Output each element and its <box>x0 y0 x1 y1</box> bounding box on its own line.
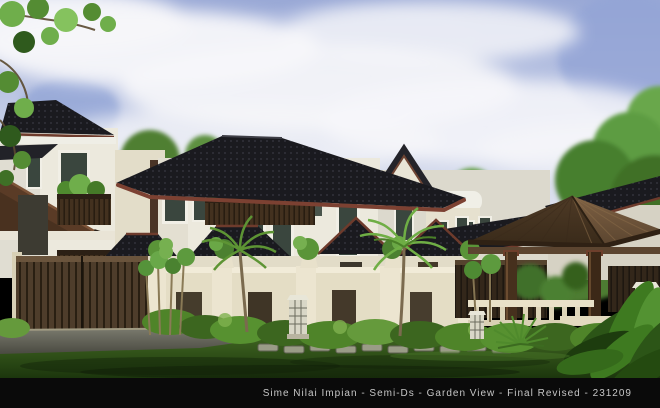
architectural-rendering <box>0 0 660 378</box>
stone-lamp <box>468 311 486 339</box>
stone-lamp <box>287 295 309 339</box>
caption-text: Sime Nilai Impian - Semi-Ds - Garden Vie… <box>263 388 632 399</box>
timber-gate <box>12 252 148 336</box>
rendering-frame: Sime Nilai Impian - Semi-Ds - Garden Vie… <box>0 0 660 408</box>
left-house-doorway <box>18 195 48 255</box>
caption-bar: Sime Nilai Impian - Semi-Ds - Garden Vie… <box>0 378 660 408</box>
gazebo-beam <box>468 247 660 254</box>
